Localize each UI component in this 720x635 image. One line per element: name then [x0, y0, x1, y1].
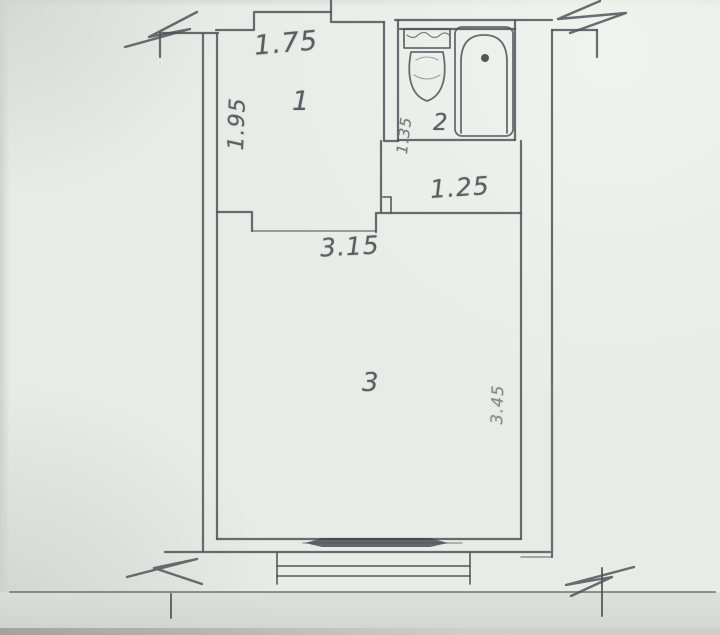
photo-bottom-shadow: [0, 628, 720, 635]
dimension-room1-width: 1.75: [253, 27, 319, 59]
wall-break-icon-top-right: [558, 1, 626, 33]
dimension-room3-width: 3.15: [319, 232, 380, 260]
entry-steps: [277, 553, 470, 584]
dimension-hall-width: 1.25: [429, 173, 490, 202]
bathtub-icon: [455, 27, 513, 136]
dimension-bath-side: 1.35: [395, 116, 414, 155]
wall-break-icon-bottom-left: [127, 559, 202, 618]
room-2-label: 2: [433, 112, 449, 135]
room1-room3-wall: [217, 197, 521, 232]
left-wall: [160, 33, 550, 552]
room-1-label: 1: [292, 88, 310, 115]
right-wall: [521, 30, 602, 616]
dimension-room3-depth: 3.45: [489, 384, 506, 424]
dimension-room1-depth: 1.95: [226, 97, 250, 151]
room1-right-wall: [381, 22, 398, 212]
floor-plan-drawing: [0, 0, 720, 635]
room-3-label: 3: [362, 370, 380, 396]
toilet-icon: [404, 29, 450, 101]
bathtub-drain-icon: [481, 54, 489, 62]
